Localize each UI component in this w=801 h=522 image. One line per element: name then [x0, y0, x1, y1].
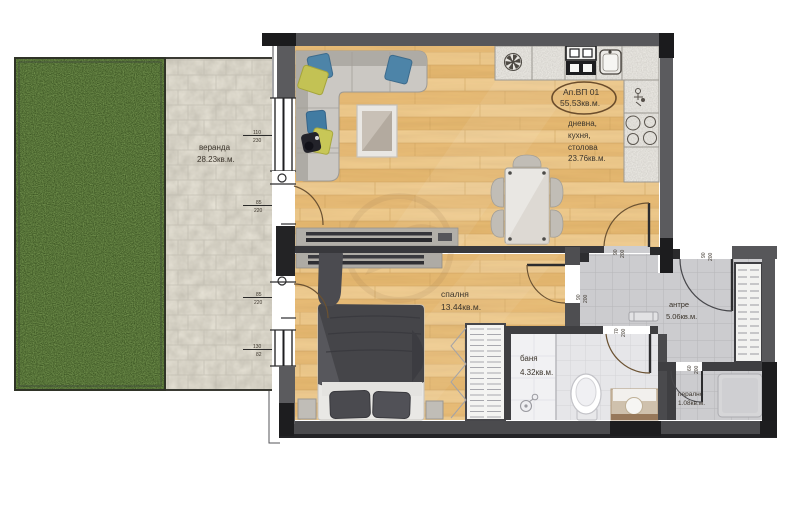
svg-text:5.06кв.м.: 5.06кв.м. [666, 312, 697, 321]
svg-text:столова: столова [568, 143, 598, 152]
svg-text:90: 90 [613, 249, 619, 255]
svg-text:кухня,: кухня, [568, 131, 591, 140]
svg-text:баня: баня [520, 354, 538, 363]
svg-text:13.44кв.м.: 13.44кв.м. [441, 302, 481, 312]
svg-text:спалня: спалня [441, 289, 469, 299]
svg-text:220: 220 [254, 300, 263, 306]
svg-text:4.32кв.м.: 4.32кв.м. [520, 368, 553, 377]
svg-text:82: 82 [256, 352, 262, 358]
svg-text:200: 200 [583, 294, 589, 303]
svg-text:230: 230 [253, 138, 262, 144]
svg-text:220: 220 [254, 208, 263, 214]
svg-text:Ап.ВП 01: Ап.ВП 01 [563, 87, 600, 97]
svg-text:28.23кв.м.: 28.23кв.м. [197, 155, 235, 164]
svg-text:200: 200 [708, 252, 714, 261]
svg-text:23.76кв.м.: 23.76кв.м. [568, 154, 606, 163]
svg-text:55.53кв.м.: 55.53кв.м. [560, 98, 600, 108]
svg-text:антре: антре [669, 300, 689, 309]
svg-text:веранда: веранда [199, 143, 231, 152]
svg-text:90: 90 [576, 294, 582, 300]
svg-text:200: 200 [621, 328, 627, 337]
svg-text:90: 90 [701, 252, 707, 258]
svg-text:200: 200 [694, 365, 700, 374]
svg-text:дневна,: дневна, [568, 119, 597, 128]
svg-text:200: 200 [620, 249, 626, 258]
svg-text:60: 60 [687, 365, 693, 371]
svg-text:70: 70 [614, 328, 620, 334]
